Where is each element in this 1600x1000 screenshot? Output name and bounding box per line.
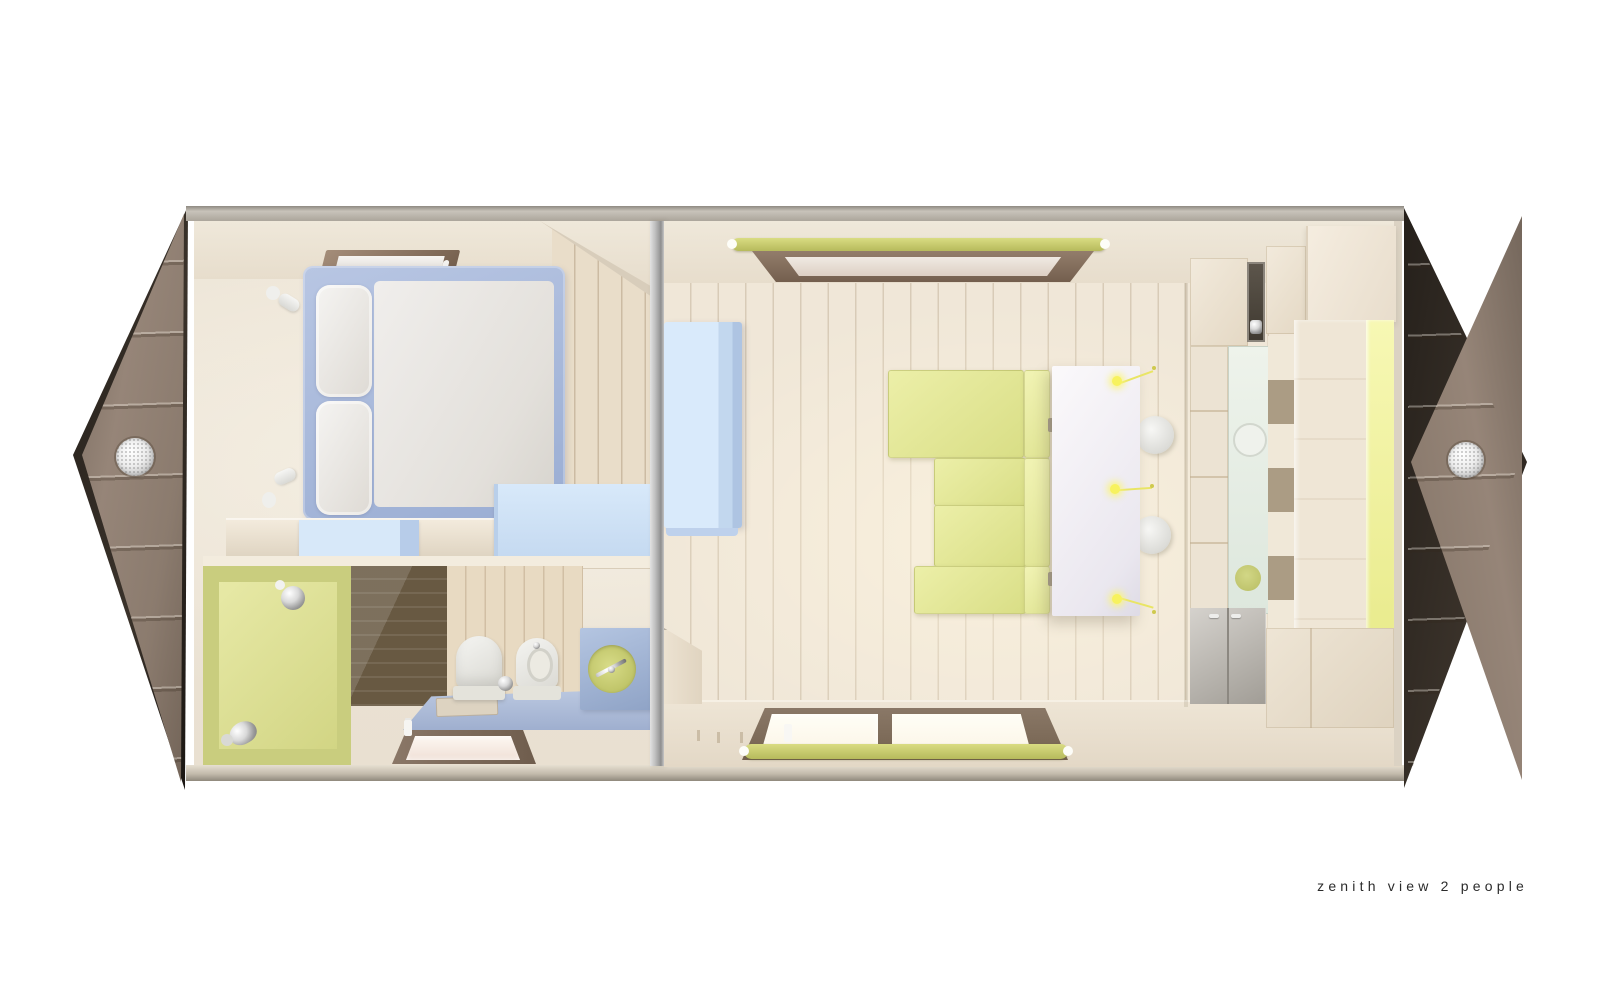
right-porthole-window — [1448, 442, 1484, 478]
bottom-blind-cap-left — [739, 746, 749, 756]
bidet — [516, 638, 558, 702]
shower-stall — [203, 566, 351, 765]
wall-spotlight-1 — [266, 284, 300, 318]
left-prow — [60, 198, 192, 798]
bed-duvet — [374, 281, 554, 507]
wall-spotlight-2 — [262, 468, 296, 512]
gray-base-cabinet — [1190, 608, 1266, 704]
bottom-window-blind — [744, 744, 1068, 759]
wood-base-cabinet — [1266, 628, 1394, 728]
toilet — [456, 636, 502, 702]
roof-window-blind-cap-right — [1100, 239, 1110, 249]
pendant-light-1 — [1112, 364, 1158, 390]
hand-sprayer-hose — [221, 734, 233, 746]
divider-wall — [650, 221, 664, 766]
blue-nightstand — [299, 520, 419, 560]
left-prow-seams — [60, 198, 192, 798]
shower-dark-floor — [351, 566, 447, 706]
shower-head-arm — [275, 580, 285, 590]
yellow-bench-cushion — [1366, 320, 1394, 640]
pendant-light-2 — [1110, 480, 1156, 498]
vanity-cabinet — [580, 628, 654, 710]
corner-tall-cabinet — [1306, 226, 1396, 322]
caption-zenith-view: zenith view 2 people — [1317, 878, 1528, 894]
sofa-chaise-bottom — [914, 566, 1026, 614]
bath-window-bottle — [404, 720, 412, 736]
blue-wardrobe — [664, 322, 742, 528]
plate-white — [1233, 423, 1267, 457]
roof-bottom-edge — [186, 765, 1404, 781]
cabinet-handle — [1231, 614, 1241, 618]
cabinet-handle — [1209, 614, 1219, 618]
right-prow — [1398, 198, 1532, 798]
blue-cabinet — [494, 484, 656, 560]
sofa-seat-2 — [934, 505, 1026, 567]
open-shelves — [1268, 336, 1294, 630]
bathroom-window — [392, 730, 536, 764]
bed-pillow-1 — [316, 285, 372, 397]
sofa-chaise-top — [888, 370, 1024, 458]
roof-window-blind — [732, 238, 1106, 251]
bottom-blind-cap-right — [1063, 746, 1073, 756]
shower-head — [281, 586, 305, 610]
wood-counter-slab — [1294, 320, 1366, 640]
sofa-backrest-top — [1024, 370, 1050, 458]
toilet-roll-holder — [498, 676, 513, 691]
floor-peg — [717, 732, 720, 743]
dining-chair-1 — [1136, 416, 1174, 454]
sofa-backrest-mid — [1024, 458, 1050, 567]
render-canvas: zenith view 2 people — [0, 0, 1600, 1000]
blue-wardrobe-base — [666, 528, 738, 536]
glass-display-cabinet — [1228, 346, 1270, 614]
dark-glass-door — [1247, 262, 1265, 342]
pendant-light-3 — [1112, 592, 1158, 618]
roof-window-blind-cap-left — [727, 239, 737, 249]
roof-top-edge — [186, 206, 1404, 221]
bottom-window-bottle — [784, 724, 792, 742]
sofa-seat-1 — [934, 458, 1026, 506]
plate-green — [1235, 565, 1261, 591]
floor-peg — [697, 730, 700, 741]
bed-pillow-2 — [316, 401, 372, 515]
kitchen-wall-shadow — [1184, 283, 1188, 707]
sofa-backrest-bottom — [1024, 566, 1050, 614]
tall-column-doors — [1190, 346, 1228, 610]
left-porthole-window — [116, 438, 154, 476]
double-bed — [303, 266, 565, 520]
roof-window — [752, 251, 1094, 282]
upper-cabinet-a — [1190, 258, 1248, 346]
